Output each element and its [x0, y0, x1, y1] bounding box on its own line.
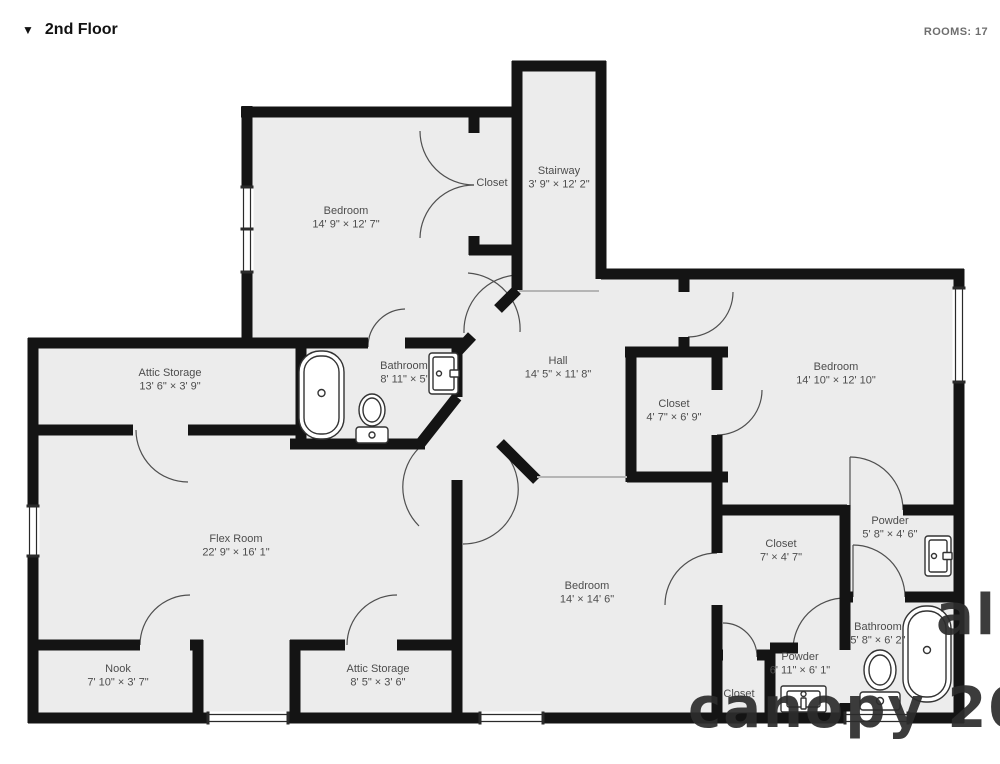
toilet-icon: [860, 650, 900, 710]
vanity-sink-icon: [781, 686, 826, 712]
window: [480, 712, 543, 725]
room-label-closet-small: Closet: [723, 688, 754, 700]
room-label-attic-storage-2: Attic Storage8' 5" × 3' 6": [347, 663, 410, 689]
rooms-counter: ROOMS: 17: [924, 26, 988, 38]
sink-icon: [429, 353, 459, 394]
window: [208, 712, 288, 725]
toilet-icon: [356, 394, 388, 443]
collapse-triangle-icon[interactable]: ▼: [22, 24, 34, 36]
bathtub-icon: [299, 351, 344, 439]
room-label-closet-top: Closet: [476, 177, 507, 189]
room-label-bedroom-bottom: Bedroom14' × 14' 6": [560, 580, 614, 606]
window: [845, 712, 908, 725]
sink-icon: [925, 536, 952, 576]
window: [27, 506, 40, 556]
room-label-attic-storage-1: Attic Storage13' 6" × 3' 9": [139, 367, 202, 393]
floorplan-canvas[interactable]: ClosetStairway3' 9" × 12' 2"Bedroom14' 9…: [0, 0, 1000, 764]
window: [953, 288, 966, 382]
bathtub-icon: [903, 606, 951, 702]
room-label-flex-room: Flex Room22' 9" × 16' 1": [202, 533, 269, 559]
room-label-bathroom-2: Bathroom5' 8" × 6' 2": [850, 621, 905, 647]
floor-title: 2nd Floor: [45, 21, 118, 39]
window: [241, 187, 254, 272]
floor-header[interactable]: ▼ 2nd Floor: [22, 21, 118, 39]
room-label-bathroom-1: Bathroom8' 11" × 5': [380, 360, 428, 386]
room-label-closet-bedroom: Closet7' × 4' 7": [760, 538, 802, 564]
